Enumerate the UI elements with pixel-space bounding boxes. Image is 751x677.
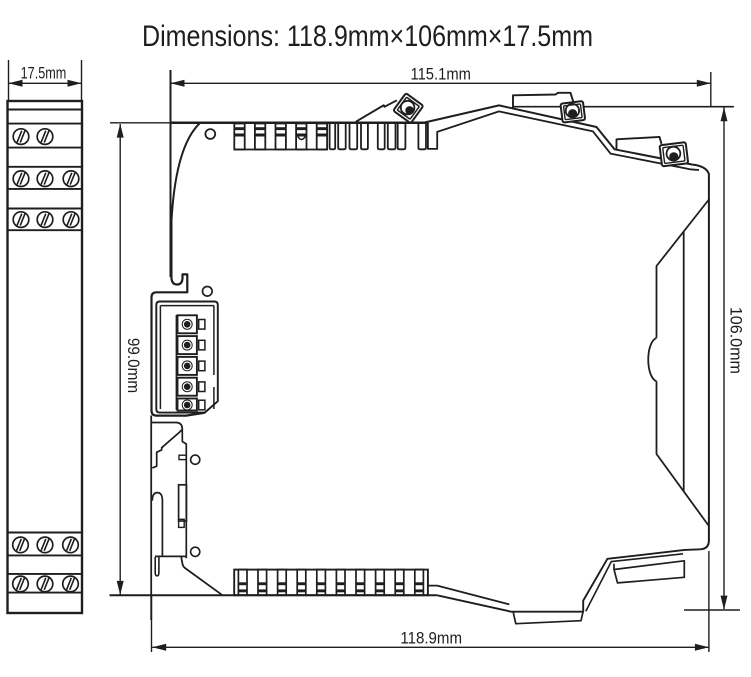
svg-text:118.9mm: 118.9mm (400, 630, 462, 648)
svg-text:17.5mm: 17.5mm (21, 65, 67, 83)
svg-text:Dimensions: 118.9mm×106mm×17.5: Dimensions: 118.9mm×106mm×17.5mm (142, 20, 593, 53)
svg-text:106.0mm: 106.0mm (727, 307, 745, 374)
svg-text:99.0mm: 99.0mm (124, 338, 142, 393)
svg-text:115.1mm: 115.1mm (411, 66, 471, 84)
